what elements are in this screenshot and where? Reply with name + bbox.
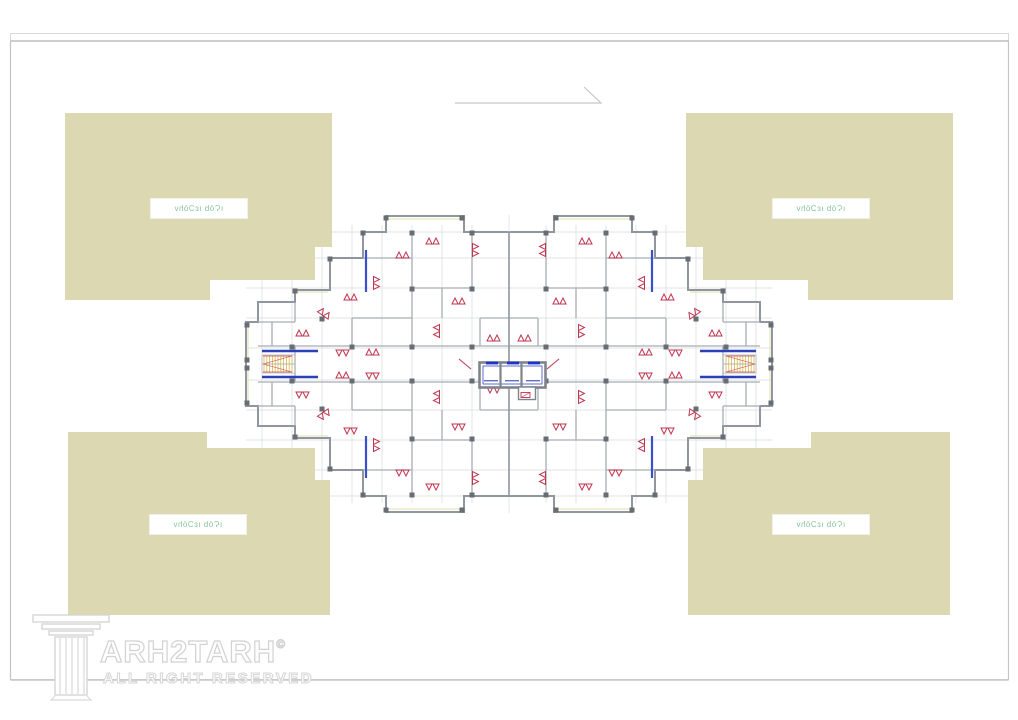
mask-label-text: ıϚōb ıɛƆöhv bbox=[796, 204, 845, 213]
mask-label-top-left: ıϚōb ıɛƆöhv bbox=[150, 198, 248, 219]
watermark-brand: ARH2TARH© bbox=[100, 634, 286, 670]
elevator-doors bbox=[486, 362, 540, 365]
mask-label-top-right: ıϚōb ıɛƆöhv bbox=[772, 198, 870, 219]
watermark: ARH2TARH© ALL RIGHT RESERVED bbox=[24, 608, 354, 708]
mask-label-bottom-left: ıϚōb ıɛƆöhv bbox=[149, 514, 247, 535]
elevator-tiny-text bbox=[484, 380, 540, 381]
mask-label-bottom-right: ıϚōb ıɛƆöhv bbox=[772, 514, 870, 535]
copyright-symbol: © bbox=[276, 637, 286, 651]
watermark-brand-text: ARH2TARH bbox=[100, 634, 276, 669]
drawing-sheet: ıϚōb ıɛƆöhv ıϚōb ıɛƆöhv ıϚōb ıɛƆöhv ıϚōb… bbox=[0, 0, 1018, 720]
mask-label-text: ıϚōb ıɛƆöhv bbox=[174, 204, 223, 213]
mask-label-text: ıϚōb ıɛƆöhv bbox=[173, 520, 222, 529]
mask-label-text: ıϚōb ıɛƆöhv bbox=[796, 520, 845, 529]
roof-leader-icon bbox=[455, 87, 601, 103]
watermark-rights: ALL RIGHT RESERVED bbox=[103, 670, 314, 687]
